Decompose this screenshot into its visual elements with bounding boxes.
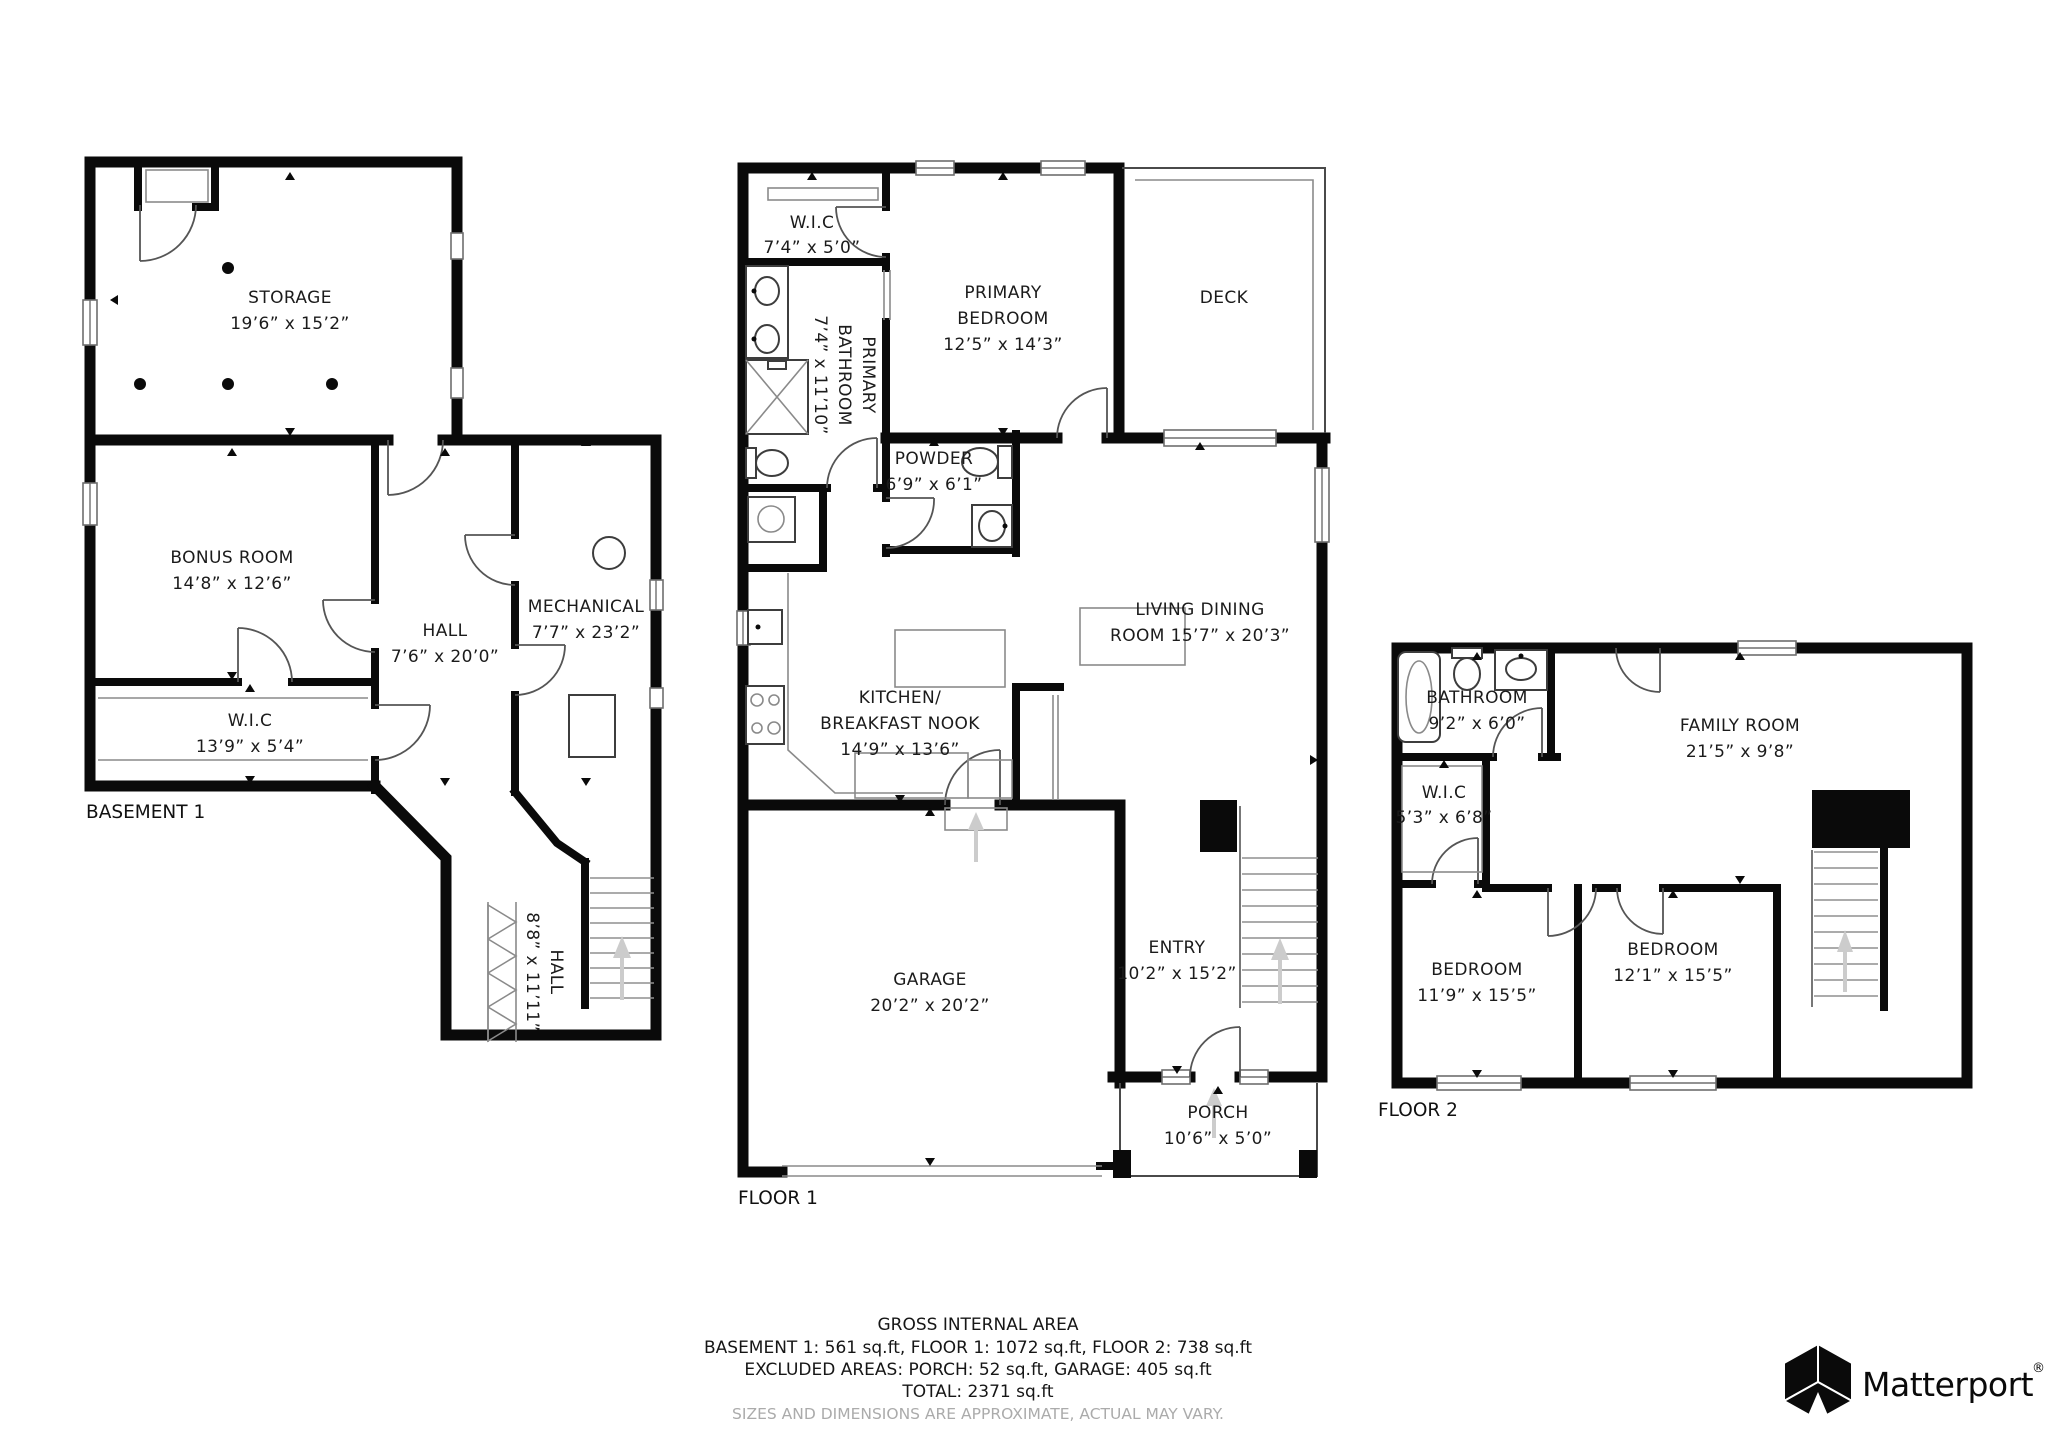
basement-plan: STORAGE 19’6” x 15’2” BONUS ROOM 14’8” x… (83, 162, 663, 1042)
room-label-kitchen-1: KITCHEN/ (859, 688, 942, 708)
sink-icon (755, 325, 779, 353)
dimension-tick-icon (285, 172, 295, 180)
stair-break-line (488, 905, 516, 1041)
room-label-mechanical: MECHANICAL (528, 597, 645, 617)
support-post-icon (326, 378, 338, 390)
room-dims-primary-bedroom: 12’5” x 14’3” (943, 335, 1062, 355)
room-label-primary-bedroom-2: BEDROOM (957, 309, 1049, 329)
dimension-tick-icon (110, 295, 118, 305)
room-label-living-1: LIVING DINING (1135, 600, 1264, 620)
room-label-primary-bath-group: PRIMARY BATHROOM 7’4” x 11’10” (810, 315, 878, 434)
floorplan-canvas: STORAGE 19’6” x 15’2” BONUS ROOM 14’8” x… (0, 0, 2048, 1448)
floor2-windows (1437, 641, 1796, 1090)
room-dims-mechanical: 7’7” x 23’2” (532, 623, 640, 643)
room-label-hall2: HALL (546, 950, 566, 995)
footer-disclaimer: SIZES AND DIMENSIONS ARE APPROXIMATE, AC… (732, 1405, 1224, 1423)
floor1-deck-porch-outline (782, 168, 1325, 1178)
floorplan-page: STORAGE 19’6” x 15’2” BONUS ROOM 14’8” x… (0, 0, 2048, 1448)
room-dims-bathroom2: 9’2” x 6’0” (1429, 714, 1526, 734)
matterport-logo-icon (1784, 1344, 1852, 1420)
room-label-primary-bath-2: BATHROOM (834, 324, 854, 426)
basement-fixtures (98, 170, 625, 760)
floor2-labels: BATHROOM 9’2” x 6’0” W.I.C 5’3” x 6’8” F… (1378, 688, 1800, 1121)
dimension-tick-icon (581, 778, 591, 786)
sink-icon (755, 277, 779, 305)
room-label-bathroom2: BATHROOM (1426, 688, 1528, 708)
toilet-icon (756, 450, 788, 476)
room-label-bonus: BONUS ROOM (170, 548, 293, 568)
room-label-primary-bath-1: PRIMARY (858, 336, 878, 413)
pocket-door (884, 270, 890, 320)
toilet-tank (998, 446, 1012, 478)
dimension-tick-icon (227, 448, 237, 456)
plan-label-basement: BASEMENT 1 (86, 802, 205, 823)
floor1-plan: W.I.C 7’4” x 5’0” PRIMARY BATHROOM 7’4” … (737, 161, 1329, 1209)
room-label-living-2: ROOM 15’7” x 20’3” (1110, 626, 1290, 646)
room-label-wic1: W.I.C (790, 213, 835, 233)
room-dims-powder: 6’9” x 6’1” (886, 475, 983, 495)
basement-stairs (488, 878, 654, 1042)
room-dims-bedroom1: 11’9” x 15’5” (1417, 986, 1536, 1006)
basement-labels: STORAGE 19’6” x 15’2” BONUS ROOM 14’8” x… (86, 288, 644, 1032)
room-dims-family: 21’5” x 9’8” (1686, 742, 1794, 762)
registered-mark-icon: ® (2032, 1361, 2045, 1376)
room-label-bedroom2: BEDROOM (1627, 940, 1719, 960)
kitchen-island (895, 630, 1005, 687)
room-label-wic2: W.I.C (1422, 783, 1467, 803)
room-dims-garage: 20’2” x 20’2” (870, 996, 989, 1016)
washer-icon (748, 497, 795, 542)
room-label-garage: GARAGE (893, 970, 967, 990)
support-post-icon (222, 378, 234, 390)
nook-bench (968, 760, 1012, 798)
basement-doors (140, 205, 565, 760)
room-label-wic: W.I.C (228, 711, 273, 731)
support-post-icon (222, 262, 234, 274)
dimension-tick-icon (1735, 876, 1745, 884)
garage-door (782, 1166, 1102, 1176)
support-post-icon (134, 378, 146, 390)
room-dims-bedroom2: 12’1” x 15’5” (1613, 966, 1732, 986)
dimension-tick-icon (440, 778, 450, 786)
matterport-wordmark: Matterport (1862, 1365, 2034, 1404)
room-dims-wic: 13’9” x 5’4” (196, 737, 304, 757)
kitchen-counter (788, 573, 943, 793)
room-dims-porch: 10’6” x 5’0” (1164, 1129, 1272, 1149)
room-label-storage: STORAGE (248, 288, 332, 308)
room-dims-primary-bath: 7’4” x 11’10” (810, 315, 830, 434)
room-dims-wic2: 5’3” x 6’8” (1396, 808, 1493, 828)
footer-total-line: TOTAL: 2371 sq.ft (901, 1382, 1053, 1402)
footer: GROSS INTERNAL AREA BASEMENT 1: 561 sq.f… (704, 1315, 1252, 1423)
footer-areas-line: BASEMENT 1: 561 sq.ft, FLOOR 1: 1072 sq.… (704, 1338, 1252, 1358)
footer-title: GROSS INTERNAL AREA (877, 1315, 1078, 1335)
room-dims-wic1: 7’4” x 5’0” (764, 238, 861, 258)
stair-wall-block (1200, 800, 1237, 852)
stove-icon (746, 686, 784, 744)
dimension-tick-icon (1472, 890, 1482, 898)
floor1-stairs (1240, 806, 1318, 1008)
plan-label-floor2: FLOOR 2 (1378, 1100, 1458, 1121)
closet-shelf (146, 170, 208, 202)
floor2-plan: BATHROOM 9’2” x 6’0” W.I.C 5’3” x 6’8” F… (1378, 641, 1967, 1121)
kitchen-sink-icon (748, 610, 782, 644)
water-heater-icon (593, 537, 625, 569)
room-dims-storage: 19’6” x 15’2” (230, 314, 349, 334)
room-label-hall: HALL (423, 621, 468, 641)
room-label-primary-bedroom-1: PRIMARY (964, 283, 1041, 303)
dimension-tick-icon (925, 1158, 935, 1166)
floor2-stairs (1812, 850, 1878, 1007)
room-label-deck: DECK (1200, 288, 1249, 308)
plan-label-floor1: FLOOR 1 (738, 1188, 818, 1209)
room-label-kitchen-2: BREAKFAST NOOK (820, 714, 980, 734)
toilet-tank (746, 448, 756, 478)
dimension-tick-icon (245, 684, 255, 692)
footer-excluded-line: EXCLUDED AREAS: PORCH: 52 sq.ft, GARAGE:… (744, 1360, 1212, 1380)
room-dims-hall2: 8’8” x 11’11” (522, 912, 542, 1031)
room-label-entry: ENTRY (1149, 938, 1206, 958)
dimension-tick-icon (1439, 760, 1449, 768)
room-label-porch: PORCH (1187, 1103, 1248, 1123)
closet-rod (768, 188, 878, 200)
stair-wall-block (1812, 790, 1910, 848)
room-label-powder: POWDER (895, 449, 974, 469)
toilet-icon (1454, 658, 1480, 690)
furnace-icon (569, 695, 615, 757)
room-label-hall2-group: HALL 8’8” x 11’11” (522, 912, 566, 1031)
room-dims-kitchen: 14’9” x 13’6” (840, 740, 959, 760)
room-label-bedroom1: BEDROOM (1431, 960, 1523, 980)
sink-icon (979, 511, 1005, 541)
room-dims-entry: 10’2” x 15’2” (1117, 964, 1236, 984)
room-label-family: FAMILY ROOM (1680, 716, 1800, 736)
sink-icon (1506, 658, 1536, 680)
room-dims-bonus: 14’8” x 12’6” (172, 574, 291, 594)
matterport-logo: Matterport ® (1784, 1344, 2045, 1420)
room-dims-hall: 7’6” x 20’0” (391, 647, 499, 667)
